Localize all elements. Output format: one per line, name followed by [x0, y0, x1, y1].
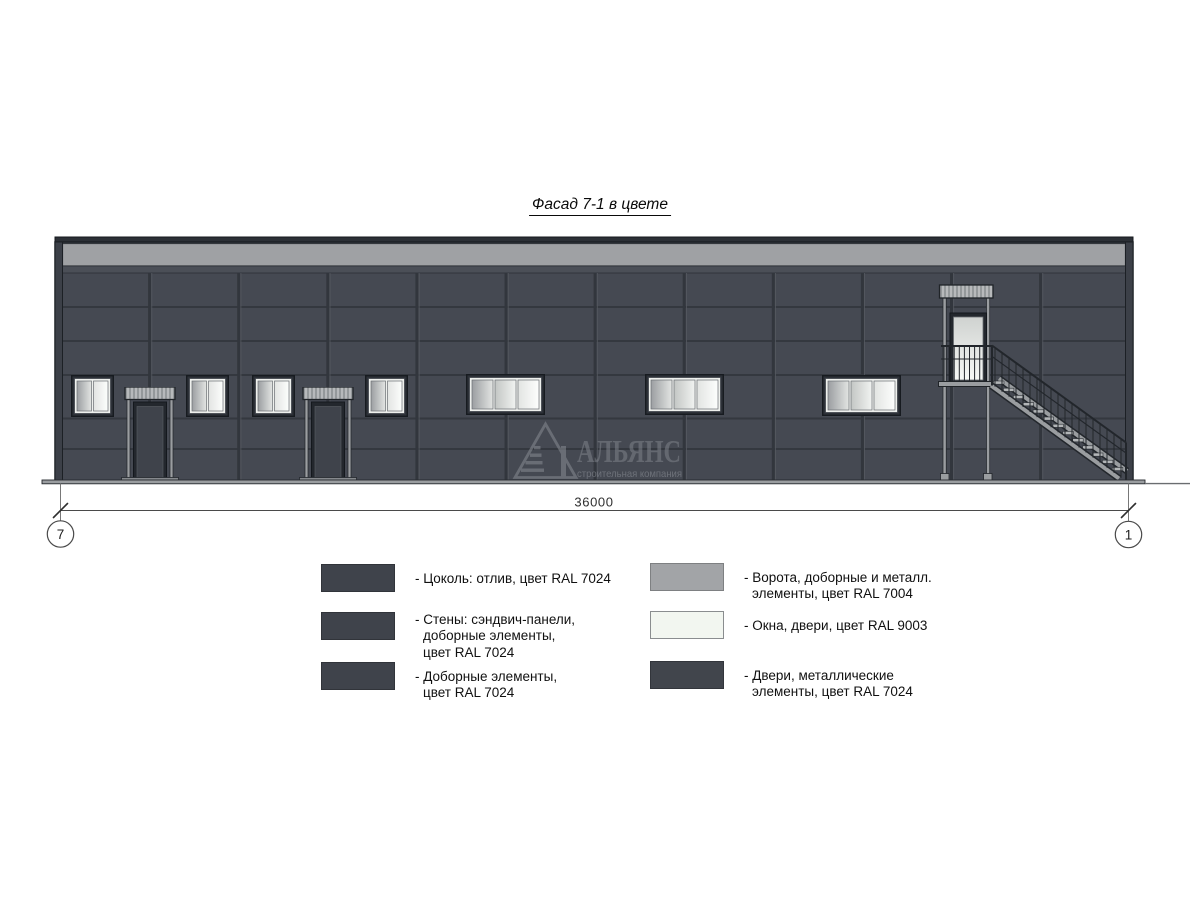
stair-tread	[1023, 403, 1033, 406]
legend-item: - Ворота, доборные и металл.элементы, цв…	[650, 563, 932, 603]
sheet: АЛЬЯНС строительная компания	[0, 0, 1200, 900]
stair-tread	[1043, 417, 1054, 420]
window-double-2	[187, 376, 229, 417]
corner-trim-left	[55, 242, 63, 481]
legend-label: - Стены: сэндвич-панели,доборные элемент…	[415, 612, 575, 661]
dimension-value: 36000	[574, 495, 613, 510]
window-double-1	[72, 376, 114, 417]
axis-label-7: 7	[57, 527, 65, 542]
page-title: Фасад 7-1 в цвете	[529, 196, 671, 216]
legend-swatch	[321, 662, 395, 690]
window-double-4	[366, 376, 408, 417]
facade-drawing: АЛЬЯНС строительная компания	[0, 0, 1200, 900]
legend-swatch	[321, 612, 395, 640]
legend-swatch	[650, 563, 724, 591]
legend-item: - Доборные элементы,цвет RAL 7024	[321, 662, 557, 702]
legend-label: - Цоколь: отлив, цвет RAL 7024	[415, 571, 611, 592]
exit-door	[954, 317, 984, 380]
legend-label: - Окна, двери, цвет RAL 9003	[744, 618, 927, 639]
watermark-company-subtitle: строительная компания	[577, 468, 682, 480]
window-triple-1	[467, 375, 545, 415]
parapet-sub-band	[63, 266, 1126, 273]
legend-item: - Двери, металлическиеэлементы, цвет RAL…	[650, 661, 913, 701]
window-double-3	[253, 376, 295, 417]
window-triple-3	[823, 376, 901, 416]
ground-strip	[42, 480, 1145, 484]
stair-tread	[1033, 410, 1044, 413]
dimension: 36000 7 1	[47, 484, 1141, 548]
legend-item: - Цоколь: отлив, цвет RAL 7024	[321, 564, 611, 592]
stair-tread	[1093, 453, 1104, 456]
parapet-band	[63, 244, 1126, 267]
stair-tread	[1102, 460, 1113, 463]
axis-label-1: 1	[1125, 528, 1133, 543]
legend-item: - Окна, двери, цвет RAL 9003	[650, 611, 927, 639]
watermark-company-name: АЛЬЯНС	[577, 433, 681, 469]
stair-tread	[1073, 439, 1084, 442]
stair-tread	[1013, 395, 1024, 398]
legend-swatch	[650, 611, 724, 639]
legend-item: - Стены: сэндвич-панели,доборные элемент…	[321, 612, 575, 661]
legend-label: - Доборные элементы,цвет RAL 7024	[415, 669, 557, 702]
legend-swatch	[321, 564, 395, 592]
legend-swatch	[650, 661, 724, 689]
stair-tread	[1083, 446, 1094, 449]
legend-label: - Ворота, доборные и металл.элементы, цв…	[744, 570, 932, 603]
window-triple-2	[646, 375, 724, 415]
legend-label: - Двери, металлическиеэлементы, цвет RAL…	[744, 668, 913, 701]
exit-platform	[939, 382, 996, 387]
exit-canopy	[940, 285, 994, 298]
